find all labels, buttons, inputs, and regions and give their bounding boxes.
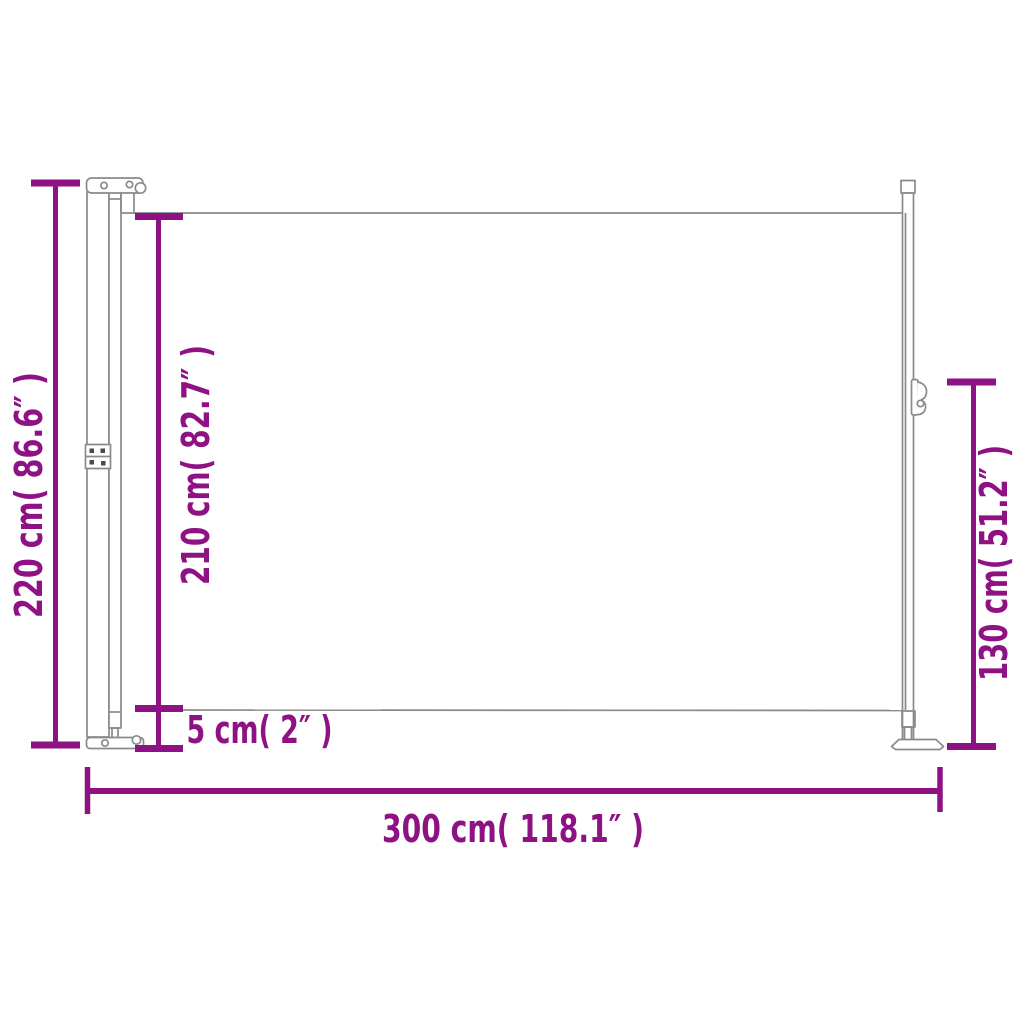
cassette-post: [86, 178, 146, 749]
pole-height-label: 130 cm( 51.2″ ): [972, 445, 1016, 681]
support-pole: [892, 181, 944, 750]
dimension-annotations: 220 cm( 86.6″ ) 210 cm( 82.7″ ) 5 cm( 2″…: [7, 183, 1016, 851]
foot-lug: [132, 736, 140, 744]
bracket-screw-icon: [90, 460, 95, 465]
total-width-label: 300 cm( 118.1″ ): [382, 807, 644, 851]
bracket-screw-icon: [90, 449, 95, 454]
pole-top-cap: [901, 181, 915, 194]
pole-body: [903, 193, 914, 740]
bottom-gap-label: 5 cm( 2″ ): [187, 708, 333, 752]
wall-bracket: [86, 445, 111, 469]
overall-height-label: 220 cm( 86.6″ ): [7, 372, 51, 618]
bracket-screw-icon: [101, 449, 106, 454]
bracket-screw-icon: [101, 461, 106, 466]
dimension-overall-height: 220 cm( 86.6″ ): [7, 183, 80, 745]
cassette-foot: [87, 736, 144, 749]
fabric-panel: [134, 213, 903, 711]
awning-dimension-diagram: 220 cm( 86.6″ ) 210 cm( 82.7″ ) 5 cm( 2″…: [0, 0, 1024, 1024]
fabric-height-label: 210 cm( 82.7″ ): [174, 345, 218, 585]
product-dimension-image: 220 cm( 86.6″ ) 210 cm( 82.7″ ) 5 cm( 2″…: [0, 0, 1024, 1024]
dimension-fabric-height: 210 cm( 82.7″ ) 5 cm( 2″ ): [135, 217, 333, 753]
dimension-pole-height: 130 cm( 51.2″ ): [947, 382, 1016, 747]
cap-pivot-knob: [135, 183, 145, 193]
cassette-top-cap: [87, 178, 146, 193]
roller-top-bracket: [121, 193, 134, 214]
roller-bottom-stub: [112, 728, 118, 738]
pole-handle: [912, 380, 927, 416]
pole-foot: [892, 740, 944, 750]
dimension-total-width: 300 cm( 118.1″ ): [88, 767, 941, 851]
